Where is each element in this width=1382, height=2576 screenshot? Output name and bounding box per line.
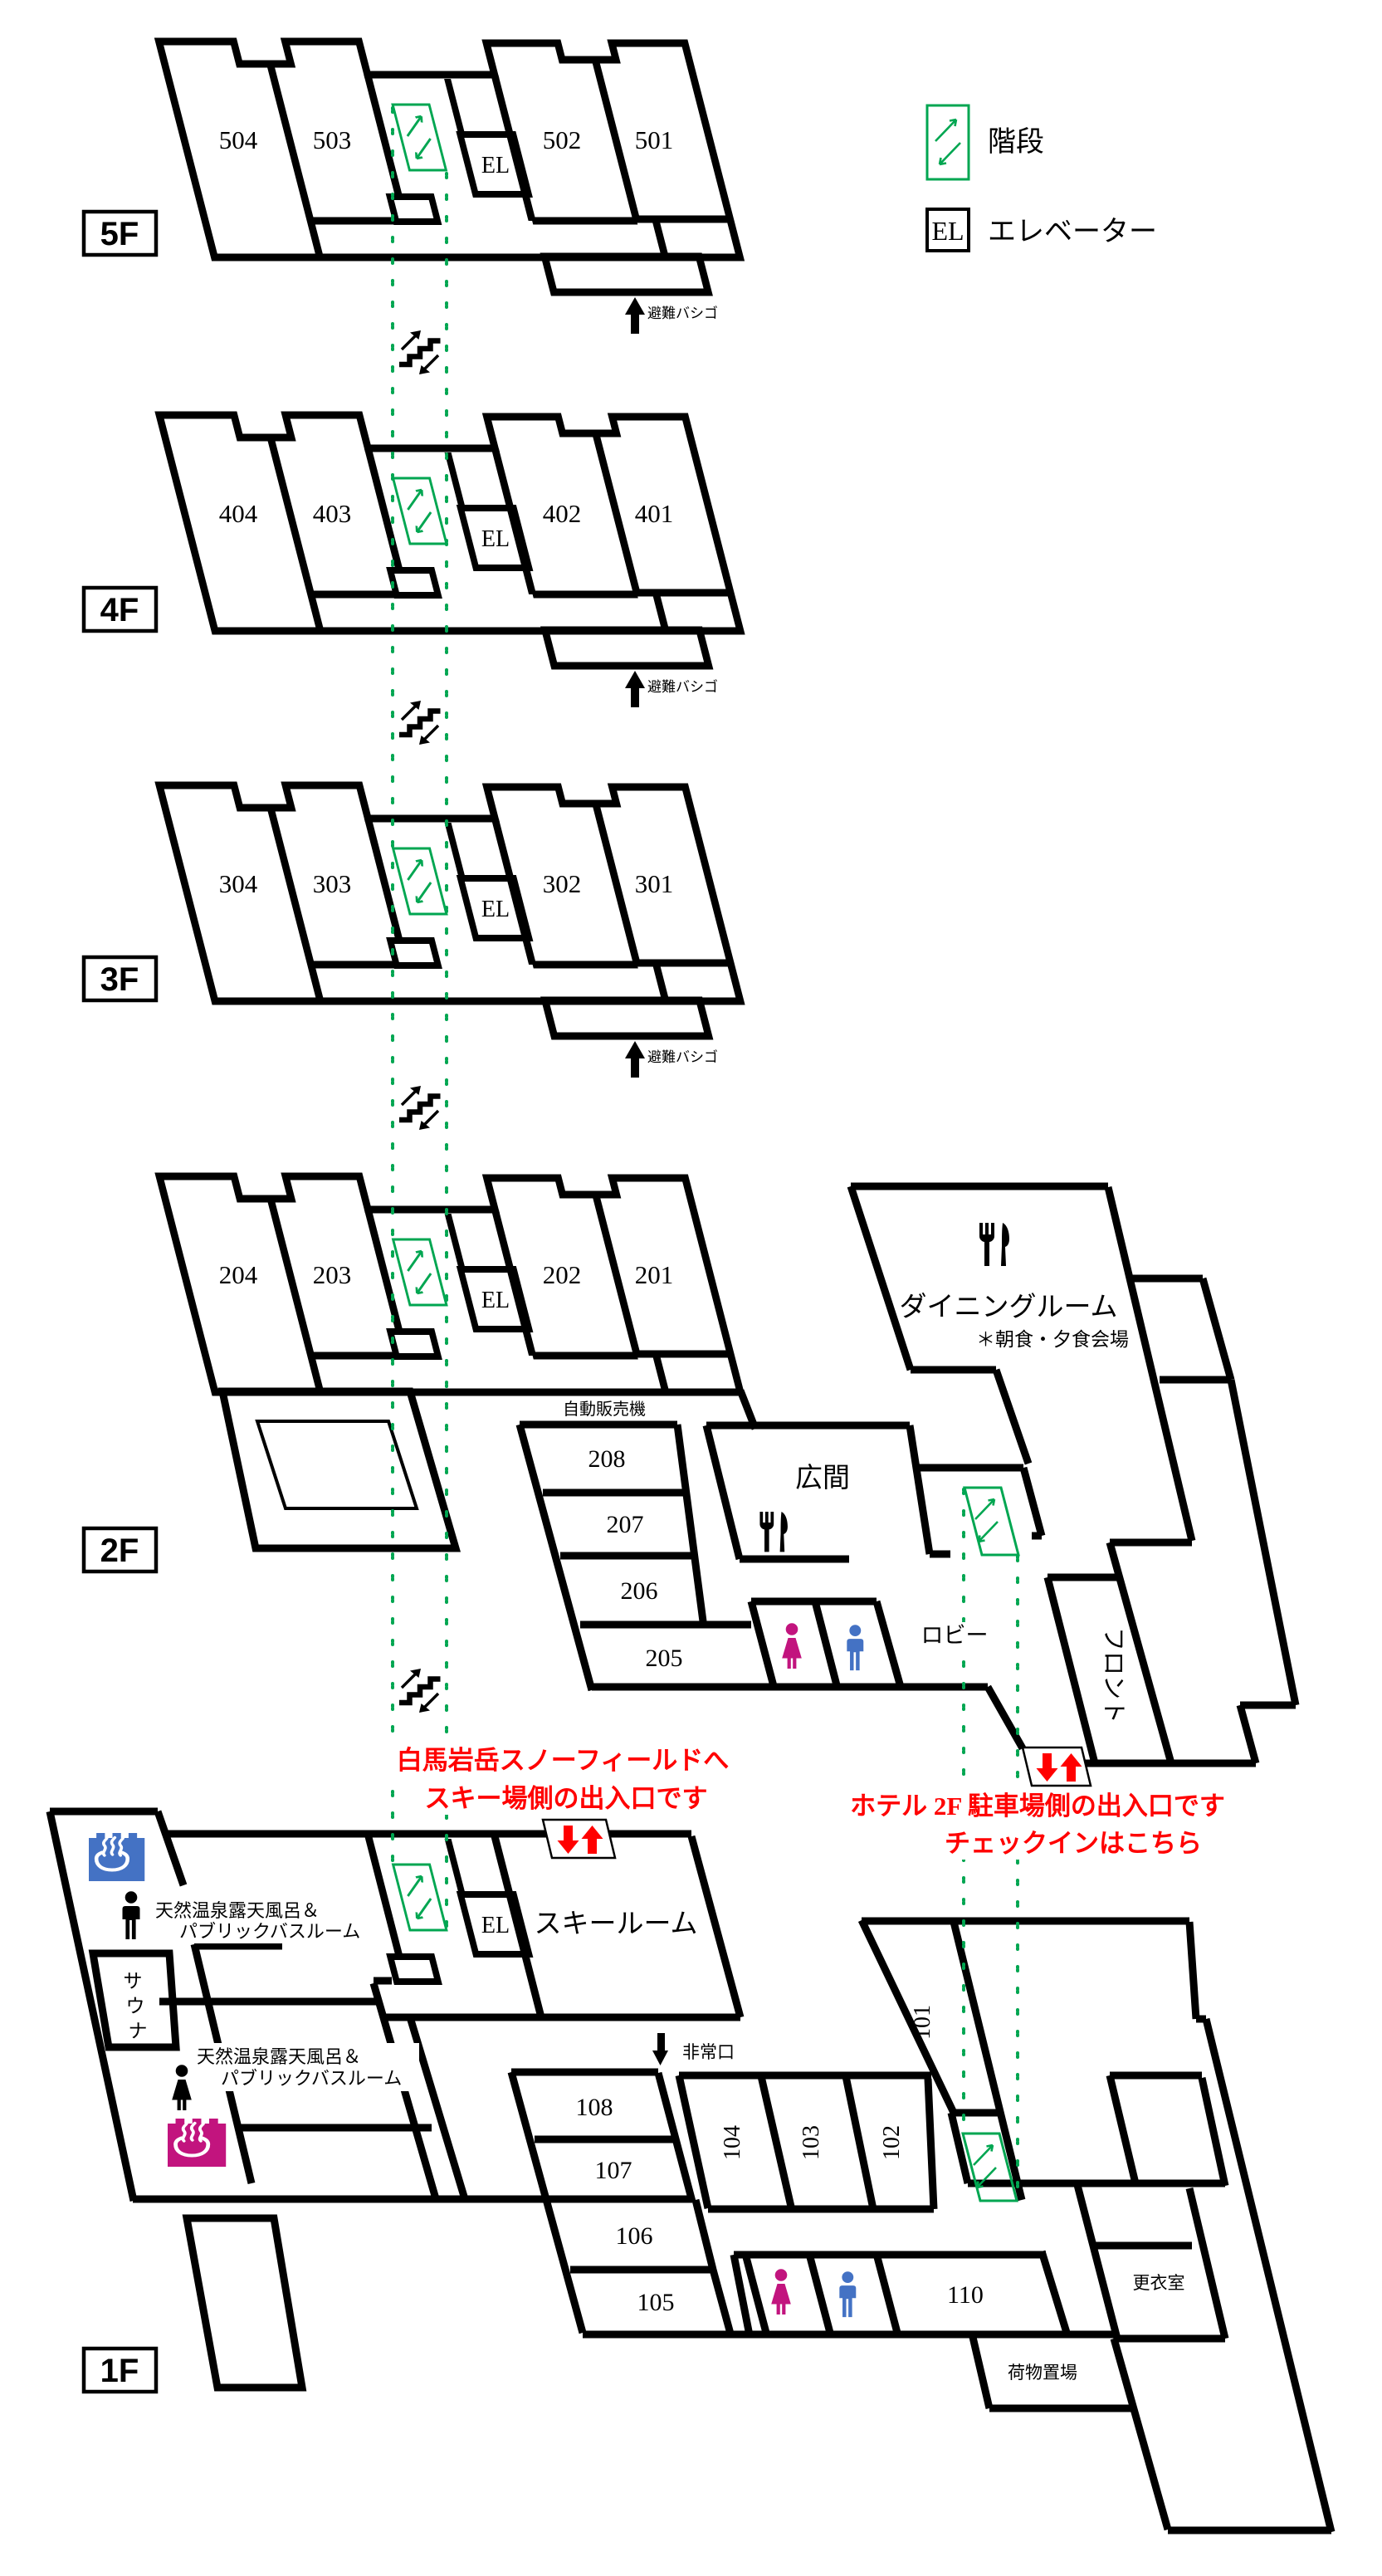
svg-text:1F: 1F [100,2353,139,2389]
svg-text:広間: 広間 [795,1463,850,1493]
svg-text:106: 106 [616,2222,653,2250]
svg-text:4F: 4F [100,592,139,628]
svg-text:ロビー: ロビー [921,1623,989,1648]
svg-text:206: 206 [621,1577,658,1605]
svg-text:503: 503 [313,125,352,154]
svg-text:2F: 2F [100,1532,139,1569]
svg-text:401: 401 [635,499,674,528]
svg-text:204: 204 [219,1260,258,1289]
svg-text:パブリックバスルーム: パブリックバスルーム [221,2068,402,2089]
svg-text:スキールーム: スキールーム [534,1909,697,1939]
svg-text:自動販売機: 自動販売機 [563,1400,646,1419]
svg-text:110: 110 [947,2281,984,2309]
svg-text:ダイニングルーム: ダイニングルーム [899,1292,1117,1322]
svg-text:403: 403 [313,499,352,528]
svg-text:102: 102 [879,2125,905,2160]
svg-text:スキー場側の出入口です: スキー場側の出入口です [425,1784,708,1813]
svg-text:階段: 階段 [988,126,1044,158]
svg-text:302: 302 [543,869,582,898]
svg-text:EL: EL [931,216,964,246]
svg-text:ウ: ウ [126,1996,145,2016]
svg-text:301: 301 [635,869,674,898]
svg-text:荷物置場: 荷物置場 [1008,2363,1077,2383]
svg-text:504: 504 [219,125,258,154]
svg-text:103: 103 [798,2125,824,2160]
svg-text:更衣室: 更衣室 [1133,2273,1185,2293]
svg-text:パブリックバスルーム: パブリックバスルーム [179,1921,360,1942]
svg-text:105: 105 [637,2289,675,2316]
svg-text:＊朝食・夕食会場: ＊朝食・夕食会場 [976,1329,1129,1350]
svg-text:EL: EL [481,1913,510,1938]
svg-text:EL: EL [481,153,510,178]
svg-text:ナ: ナ [129,2021,148,2041]
svg-text:202: 202 [543,1260,582,1289]
svg-text:EL: EL [481,526,510,552]
svg-text:天然温泉露天風呂＆: 天然温泉露天風呂＆ [155,1900,320,1921]
svg-text:白馬岩岳スノーフィールドへ: 白馬岩岳スノーフィールドへ [397,1746,730,1775]
svg-text:207: 207 [607,1511,644,1538]
svg-text:303: 303 [313,869,352,898]
svg-text:502: 502 [543,125,582,154]
svg-text:EL: EL [481,1288,510,1313]
svg-text:404: 404 [219,499,258,528]
svg-text:サ: サ [124,1971,143,1992]
svg-text:205: 205 [646,1645,683,1672]
svg-text:304: 304 [219,869,258,898]
svg-text:108: 108 [576,2094,613,2121]
svg-text:107: 107 [595,2157,632,2184]
svg-text:天然温泉露天風呂＆: 天然温泉露天風呂＆ [197,2046,361,2067]
svg-text:エレベーター: エレベーター [988,217,1157,247]
svg-text:201: 201 [635,1260,674,1289]
svg-text:5F: 5F [100,216,139,252]
svg-text:ホテル 2F 駐車場側の出入口です: ホテル 2F 駐車場側の出入口です [850,1791,1225,1821]
svg-text:フロント: フロント [1100,1627,1126,1723]
svg-text:104: 104 [720,2125,745,2160]
svg-text:3F: 3F [100,961,139,998]
svg-text:208: 208 [588,1445,626,1473]
svg-text:EL: EL [481,897,510,922]
svg-text:チェックインはこちら: チェックインはこちら [945,1829,1202,1858]
svg-text:非常口: 非常口 [682,2042,735,2062]
svg-text:101: 101 [910,2005,935,2040]
svg-text:203: 203 [313,1260,352,1289]
svg-text:501: 501 [635,125,674,154]
svg-text:402: 402 [543,499,582,528]
